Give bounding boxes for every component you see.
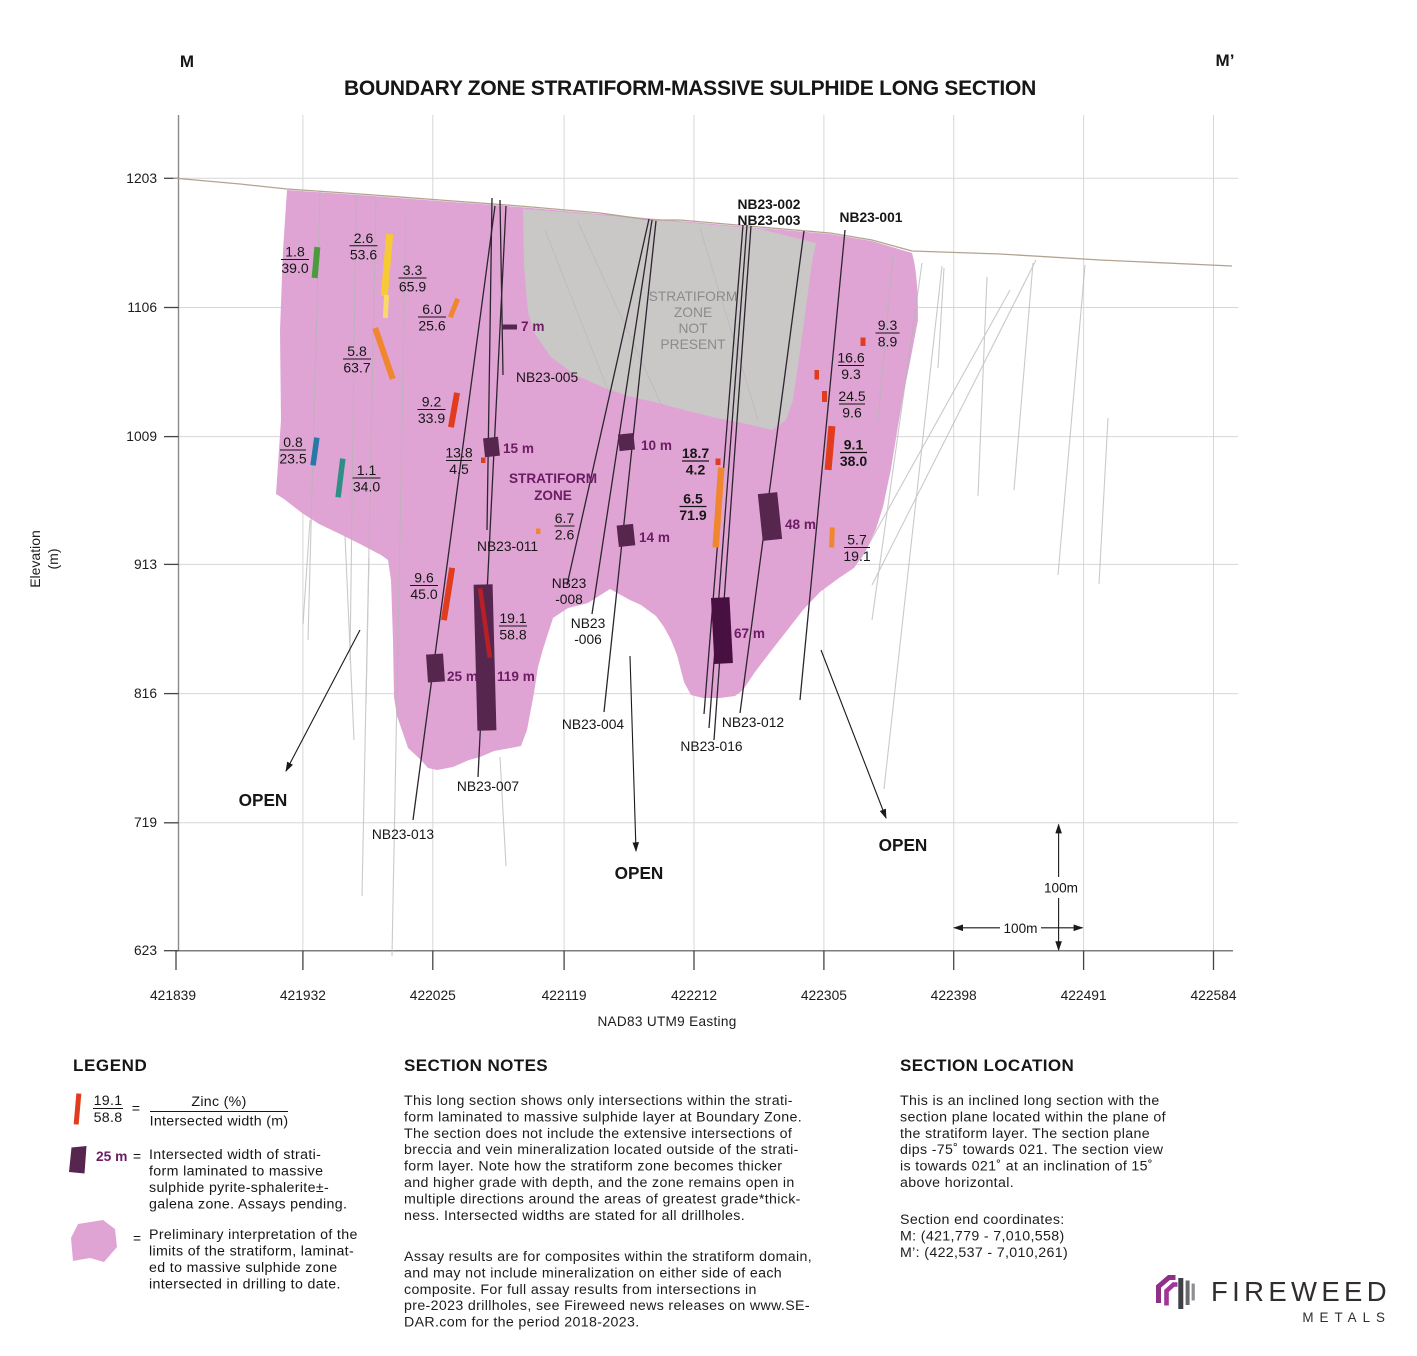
svg-text:24.5: 24.5 (838, 388, 865, 404)
svg-text:M’: (422,537 - 7,010,261): M’: (422,537 - 7,010,261) (900, 1245, 1068, 1261)
svg-text:7 m: 7 m (521, 319, 544, 334)
svg-text:DAR.com for the period 2018-20: DAR.com for the period 2018-2023. (404, 1315, 640, 1331)
svg-text:form layer. Note how the strat: form layer. Note how the stratiform zone… (404, 1159, 782, 1175)
svg-text:Intersected width (m): Intersected width (m) (150, 1114, 289, 1130)
svg-text:19.1: 19.1 (94, 1093, 123, 1109)
svg-text:NB23-007: NB23-007 (457, 779, 519, 794)
svg-text:65.9: 65.9 (399, 279, 426, 295)
svg-text:SECTION NOTES: SECTION NOTES (404, 1056, 548, 1075)
svg-text:38.0: 38.0 (840, 453, 867, 469)
svg-text:sulphide pyrite-sphalerite±-: sulphide pyrite-sphalerite±- (149, 1180, 329, 1196)
svg-text:form laminated to massive: form laminated to massive (149, 1164, 323, 1180)
svg-text:above horizontal.: above horizontal. (900, 1175, 1014, 1191)
svg-text:breccia and vein mineralizatio: breccia and vein mineralization located … (404, 1142, 799, 1158)
svg-text:NB23: NB23 (552, 576, 587, 591)
svg-text:34.0: 34.0 (353, 479, 380, 495)
svg-text:Preliminary interpretation of: Preliminary interpretation of the (149, 1227, 358, 1243)
svg-text:the stratiform layer. The sect: the stratiform layer. The section plane (900, 1126, 1150, 1142)
svg-text:NB23-013: NB23-013 (372, 827, 434, 842)
svg-text:OPEN: OPEN (239, 790, 288, 810)
svg-text:=: = (132, 1101, 141, 1117)
svg-text:422305: 422305 (801, 988, 847, 1003)
svg-text:6.5: 6.5 (683, 491, 703, 507)
svg-text:19.1: 19.1 (843, 548, 870, 564)
svg-text:623: 623 (134, 943, 157, 958)
svg-text:multiple directions around the: multiple directions around the areas of … (404, 1191, 801, 1207)
svg-text:15 m: 15 m (503, 441, 534, 456)
svg-text:422212: 422212 (671, 988, 717, 1003)
svg-text:-006: -006 (574, 632, 602, 647)
svg-text:421932: 421932 (280, 988, 326, 1003)
svg-text:NB23-005: NB23-005 (516, 370, 578, 385)
svg-text:NAD83 UTM9 Easting: NAD83 UTM9 Easting (597, 1014, 736, 1029)
svg-text:galena zone. Assays pending.: galena zone. Assays pending. (149, 1197, 347, 1213)
svg-text:NB23-003: NB23-003 (738, 213, 801, 228)
svg-text:OPEN: OPEN (879, 835, 928, 855)
svg-text:18.7: 18.7 (682, 445, 709, 461)
svg-text:25.6: 25.6 (418, 318, 445, 334)
svg-text:422025: 422025 (410, 988, 456, 1003)
svg-text:M: M (180, 52, 194, 71)
svg-text:100m: 100m (1003, 921, 1037, 936)
svg-text:ZONE: ZONE (674, 305, 712, 320)
svg-text:PRESENT: PRESENT (660, 337, 726, 352)
svg-text:NB23-016: NB23-016 (680, 739, 742, 754)
svg-text:13.8: 13.8 (445, 445, 472, 461)
svg-text:and higher grade with depth, a: and higher grade with depth, and the zon… (404, 1175, 795, 1191)
svg-text:1.8: 1.8 (285, 244, 305, 260)
svg-text:4.2: 4.2 (686, 462, 706, 478)
svg-text:OPEN: OPEN (615, 863, 664, 883)
svg-text:ed to massive sulphide zone: ed to massive sulphide zone (149, 1260, 337, 1276)
svg-text:119 m: 119 m (497, 669, 535, 684)
svg-text:913: 913 (134, 557, 157, 572)
svg-text:422398: 422398 (931, 988, 977, 1003)
svg-text:=: = (133, 1149, 141, 1164)
svg-text:STRATIFORM: STRATIFORM (649, 289, 738, 304)
svg-text:This long section shows only i: This long section shows only intersectio… (404, 1093, 793, 1109)
svg-text:63.7: 63.7 (343, 360, 370, 376)
svg-text:9.3: 9.3 (878, 317, 898, 333)
svg-text:NB23-004: NB23-004 (562, 717, 624, 732)
svg-text:422584: 422584 (1190, 988, 1236, 1003)
svg-text:The section does not include t: The section does not include the extensi… (404, 1126, 792, 1142)
svg-text:1.1: 1.1 (357, 462, 377, 478)
svg-text:This is an inclined long secti: This is an inclined long section with th… (900, 1093, 1160, 1109)
svg-text:ZONE: ZONE (534, 488, 572, 503)
svg-text:25 m: 25 m (447, 669, 478, 684)
svg-text:14 m: 14 m (639, 530, 670, 545)
svg-text:FIREWEED: FIREWEED (1211, 1276, 1391, 1307)
svg-text:STRATIFORM: STRATIFORM (509, 471, 597, 486)
svg-text:Zinc (%): Zinc (%) (191, 1094, 246, 1110)
svg-text:Intersected width of strati-: Intersected width of strati- (149, 1147, 321, 1163)
svg-text:Section end coordinates:: Section end coordinates: (900, 1212, 1065, 1228)
svg-text:LEGEND: LEGEND (73, 1056, 147, 1075)
svg-text:5.7: 5.7 (847, 532, 867, 548)
svg-text:71.9: 71.9 (679, 507, 706, 523)
svg-text:NB23: NB23 (571, 616, 606, 631)
svg-text:10 m: 10 m (641, 438, 672, 453)
svg-text:and may not include mineraliza: and may not include mineralization on ei… (404, 1265, 782, 1281)
svg-text:25 m: 25 m (96, 1149, 127, 1164)
svg-text:100m: 100m (1044, 881, 1078, 896)
svg-text:form laminated to massive sulp: form laminated to massive sulphide layer… (404, 1109, 802, 1125)
svg-text:1106: 1106 (127, 300, 157, 315)
svg-text:3.3: 3.3 (403, 262, 423, 278)
svg-text:=: = (133, 1231, 141, 1246)
svg-text:53.6: 53.6 (350, 246, 377, 262)
svg-text:58.8: 58.8 (94, 1110, 123, 1126)
svg-text:composite. For full assay resu: composite. For full assay results from i… (404, 1282, 757, 1298)
svg-text:NB23-001: NB23-001 (840, 210, 903, 225)
svg-text:2.6: 2.6 (555, 527, 575, 543)
svg-text:NB23-011: NB23-011 (477, 539, 538, 554)
svg-text:-008: -008 (555, 592, 583, 607)
svg-text:23.5: 23.5 (279, 451, 306, 467)
svg-text:NOT: NOT (678, 321, 708, 336)
svg-text:NB23-012: NB23-012 (722, 715, 784, 730)
svg-text:dips -75˚ towards 021. The sec: dips -75˚ towards 021. The section view (900, 1142, 1164, 1158)
svg-text:METALS: METALS (1302, 1310, 1391, 1325)
svg-text:intersected in drilling to dat: intersected in drilling to date. (149, 1277, 341, 1293)
svg-text:(m): (m) (45, 549, 61, 570)
svg-text:pre-2023 drillholes, see Firew: pre-2023 drillholes, see Fireweed news r… (404, 1298, 810, 1314)
svg-text:9.6: 9.6 (842, 405, 862, 421)
svg-text:67 m: 67 m (734, 626, 765, 641)
svg-text:9.1: 9.1 (844, 437, 864, 453)
svg-text:1009: 1009 (126, 429, 157, 444)
svg-text:9.2: 9.2 (422, 394, 442, 410)
svg-text:NB23-002: NB23-002 (738, 197, 801, 212)
svg-text:ness. Intersected widths are s: ness. Intersected widths are stated for … (404, 1208, 745, 1224)
svg-text:5.8: 5.8 (347, 343, 367, 359)
svg-text:Elevation: Elevation (27, 530, 43, 588)
svg-text:8.9: 8.9 (878, 334, 898, 350)
svg-text:6.7: 6.7 (555, 510, 575, 526)
svg-text:1203: 1203 (126, 171, 157, 186)
svg-text:422119: 422119 (542, 988, 587, 1003)
svg-text:422491: 422491 (1061, 988, 1107, 1003)
svg-text:816: 816 (134, 686, 157, 701)
svg-text:SECTION LOCATION: SECTION LOCATION (900, 1056, 1074, 1075)
svg-text:section plane located within t: section plane located within the plane o… (900, 1109, 1166, 1125)
svg-text:is towards 021˚ at an inclinat: is towards 021˚ at an inclination of 15˚ (900, 1159, 1153, 1175)
svg-text:BOUNDARY ZONE STRATIFORM-MASSI: BOUNDARY ZONE STRATIFORM-MASSIVE SULPHID… (344, 77, 1036, 100)
svg-text:limits of the stratiform, lami: limits of the stratiform, laminat- (149, 1244, 354, 1260)
svg-text:33.9: 33.9 (418, 410, 445, 426)
svg-text:2.6: 2.6 (354, 230, 374, 246)
svg-text:421839: 421839 (150, 988, 196, 1003)
svg-text:45.0: 45.0 (410, 586, 437, 602)
svg-text:48 m: 48 m (785, 517, 816, 532)
svg-text:719: 719 (134, 815, 157, 830)
svg-text:16.6: 16.6 (837, 350, 864, 366)
svg-text:4.5: 4.5 (449, 461, 469, 477)
svg-text:6.0: 6.0 (422, 301, 442, 317)
svg-text:9.3: 9.3 (841, 366, 861, 382)
svg-text:M: (421,779 - 7,010,558): M: (421,779 - 7,010,558) (900, 1228, 1065, 1244)
svg-text:9.6: 9.6 (414, 570, 434, 586)
svg-text:Assay results are for composit: Assay results are for composites within … (404, 1249, 812, 1265)
svg-text:M’: M’ (1216, 51, 1235, 70)
svg-text:19.1: 19.1 (499, 610, 526, 626)
svg-text:58.8: 58.8 (499, 627, 526, 643)
svg-text:39.0: 39.0 (281, 260, 308, 276)
svg-text:0.8: 0.8 (283, 434, 303, 450)
